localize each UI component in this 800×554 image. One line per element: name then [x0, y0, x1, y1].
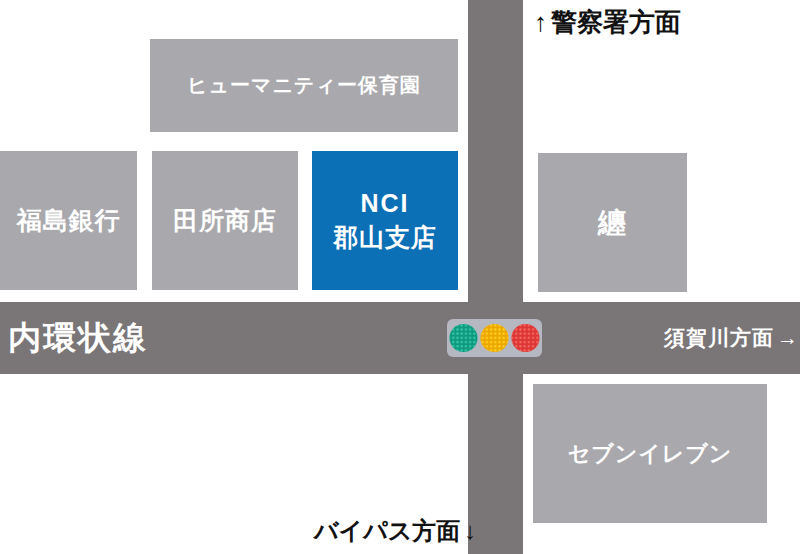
building-matoi: 纏: [538, 153, 687, 292]
building-fukushima-bank: 福島銀行: [0, 151, 137, 290]
building-nursery-label: ヒューマニティー保育園: [187, 72, 421, 99]
direction-bypass-label: バイパス方面: [314, 515, 460, 547]
direction-sukagawa: 須賀川方面→: [664, 302, 799, 374]
building-seven-eleven: セブンイレブン: [533, 384, 767, 523]
down-arrow-icon: ↓: [464, 517, 476, 545]
traffic-light: [447, 319, 542, 357]
road-name-label: 内環状線: [8, 302, 148, 374]
building-tadokoro-shoten: 田所商店: [152, 151, 298, 290]
up-arrow-icon: ↑: [534, 7, 547, 38]
building-nci-label-line2: 郡山支店: [333, 221, 437, 255]
access-map-canvas: ヒューマニティー保育園 福島銀行 田所商店 NCI 郡山支店 纏 セブンイレブン…: [0, 0, 800, 554]
right-arrow-icon: →: [777, 326, 799, 350]
building-nci-koriyama-branch: NCI 郡山支店: [312, 151, 458, 290]
yellow-light-icon: [481, 324, 509, 352]
road-vertical: [468, 0, 523, 554]
building-matoi-label: 纏: [598, 204, 627, 242]
direction-police-label: 警察署方面: [551, 5, 681, 40]
building-nursery: ヒューマニティー保育園: [150, 39, 458, 132]
red-light-icon: [512, 324, 540, 352]
building-nci-label-line1: NCI: [360, 187, 409, 221]
building-bank-label: 福島銀行: [17, 204, 121, 237]
building-seven-label: セブンイレブン: [568, 439, 733, 469]
direction-bypass: バイパス方面↓: [314, 515, 476, 547]
road-name-text: 内環状線: [8, 316, 148, 361]
building-tadokoro-label: 田所商店: [173, 204, 277, 237]
direction-sukagawa-label: 須賀川方面: [664, 324, 774, 352]
green-light-icon: [450, 324, 478, 352]
direction-police-station: ↑ 警察署方面: [534, 5, 681, 40]
